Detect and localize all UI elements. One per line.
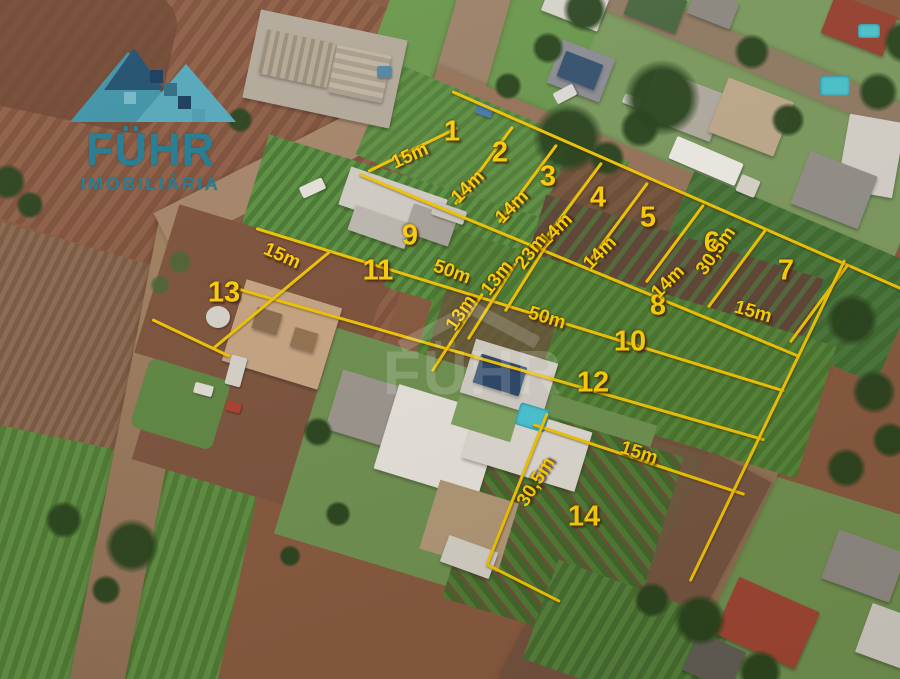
watermark-text: FÜHR	[368, 338, 578, 409]
lot-number-13: 13	[208, 279, 240, 308]
aerial-photo: 1 2 3 4 5 6 7 8 9 10 11 12 13 14 15m 14m…	[0, 0, 900, 679]
lot-number-2: 2	[492, 139, 508, 168]
shrub	[168, 250, 192, 274]
shrub	[150, 275, 170, 295]
fuhr-watermark: FÜHR	[368, 288, 578, 438]
tree	[872, 422, 900, 458]
water-tank-dome	[206, 306, 230, 328]
lot-number-5: 5	[640, 204, 656, 233]
tree	[634, 582, 670, 618]
tree	[279, 545, 301, 567]
lot-number-14: 14	[568, 503, 600, 532]
tree	[91, 575, 121, 605]
tree	[858, 72, 898, 112]
tree	[734, 34, 770, 70]
lot-number-10: 10	[614, 328, 646, 357]
tree	[532, 32, 564, 64]
lot-number-11: 11	[363, 257, 394, 286]
logo-company-subtitle: IMOBILIÁRIA	[58, 174, 243, 195]
tree	[494, 72, 522, 100]
tree	[105, 519, 159, 573]
tree	[826, 294, 878, 346]
tree	[620, 108, 660, 148]
lot-number-4: 4	[590, 184, 606, 213]
lot-number-7: 7	[778, 257, 794, 286]
lot-number-3: 3	[540, 163, 556, 192]
tree	[303, 417, 333, 447]
tree	[16, 191, 44, 219]
tree	[674, 594, 726, 646]
tree	[771, 103, 805, 137]
construction-tarp	[377, 66, 391, 78]
tree	[45, 501, 83, 539]
lot-number-12: 12	[577, 369, 609, 398]
logo-company-name: FÜHR	[58, 124, 243, 176]
tree	[325, 501, 351, 527]
lot-number-1: 1	[444, 118, 460, 147]
pool-top-right-1	[820, 76, 850, 96]
tree	[826, 448, 866, 488]
lot-number-9: 9	[402, 222, 418, 251]
pool-top-right-2	[858, 24, 880, 38]
roof-mountain-icon	[58, 48, 243, 124]
fuhr-imobiliaria-logo: FÜHR IMOBILIÁRIA	[58, 48, 243, 198]
tree	[852, 370, 896, 414]
